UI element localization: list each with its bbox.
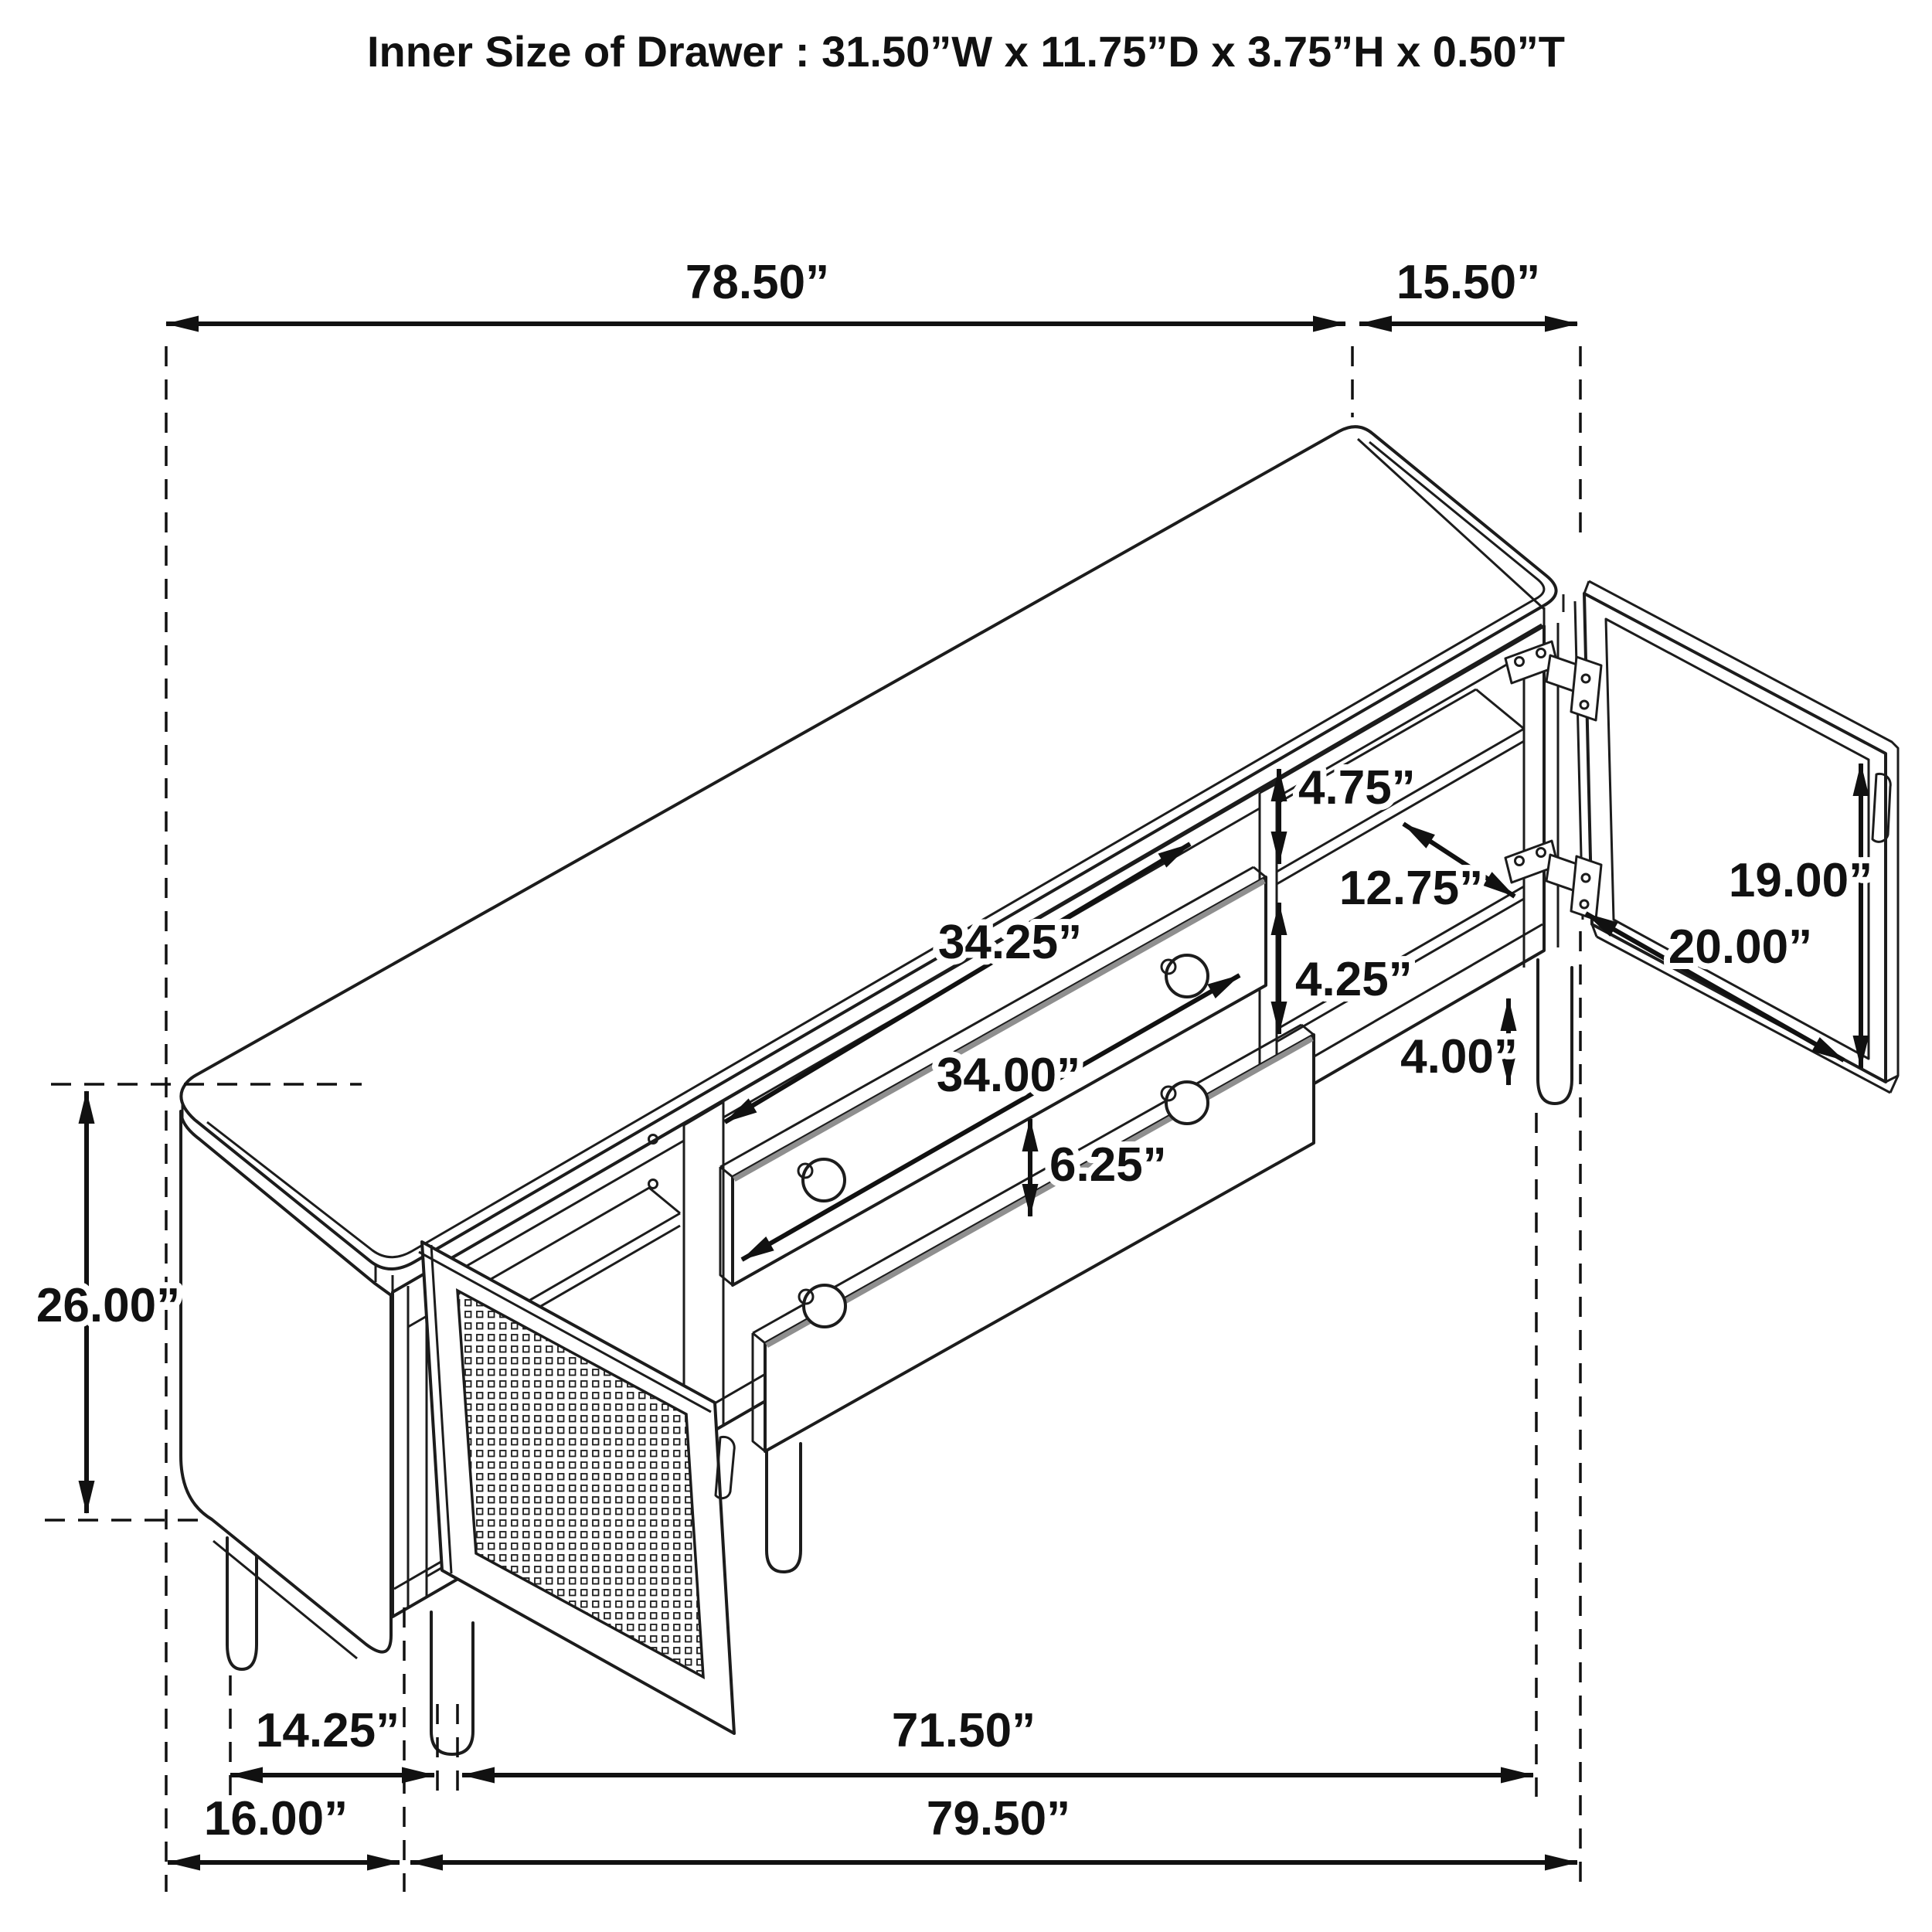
front-left-leg bbox=[431, 1612, 473, 1754]
diagram-page: 78.50” 15.50” 26.00” 14.25” 71.50” 16.00… bbox=[0, 0, 1932, 1932]
dim-label-78-50: 78.50” bbox=[685, 256, 829, 309]
dim-label-26-00: 26.00” bbox=[36, 1279, 180, 1332]
dim-label-6-25: 6.25” bbox=[1049, 1138, 1167, 1192]
dim-label-19-00: 19.00” bbox=[1729, 854, 1872, 907]
dimension-overall-width: 78.50” bbox=[166, 256, 1345, 324]
rear-left-leg bbox=[227, 1538, 257, 1669]
front-right-leg bbox=[1538, 960, 1572, 1104]
right-door-panel bbox=[1584, 594, 1886, 1082]
dim-label-4-00: 4.00” bbox=[1400, 1030, 1518, 1083]
dim-label-16-00: 16.00” bbox=[204, 1792, 348, 1845]
dim-label-34-00: 34.00” bbox=[937, 1049, 1080, 1102]
dim-label-20-00: 20.00” bbox=[1668, 920, 1812, 974]
dimension-leg-span: 71.50” bbox=[462, 1704, 1533, 1775]
dimension-diagram-canvas: 78.50” 15.50” 26.00” 14.25” 71.50” 16.00… bbox=[0, 0, 1932, 1932]
mid-leg bbox=[767, 1436, 801, 1572]
dim-label-14-25: 14.25” bbox=[256, 1704, 400, 1757]
right-door-open bbox=[1575, 581, 1898, 1093]
page-title: Inner Size of Drawer : 31.50”W x 11.75”D… bbox=[367, 27, 1565, 76]
dim-label-4-75: 4.75” bbox=[1298, 761, 1416, 815]
dim-label-4-25: 4.25” bbox=[1295, 953, 1413, 1006]
dimension-overall-depth: 15.50” bbox=[1359, 256, 1577, 324]
dimension-end-depth: 16.00” bbox=[168, 1792, 400, 1862]
dimension-overall-height: 26.00” bbox=[36, 1091, 180, 1513]
dim-label-79-50: 79.50” bbox=[927, 1792, 1070, 1845]
dim-label-71-50: 71.50” bbox=[892, 1704, 1036, 1757]
dim-label-12-75: 12.75” bbox=[1339, 862, 1483, 915]
dimension-base-width: 79.50” bbox=[410, 1792, 1577, 1862]
dim-label-15-50: 15.50” bbox=[1396, 256, 1540, 309]
dim-label-34-25: 34.25” bbox=[938, 916, 1082, 969]
